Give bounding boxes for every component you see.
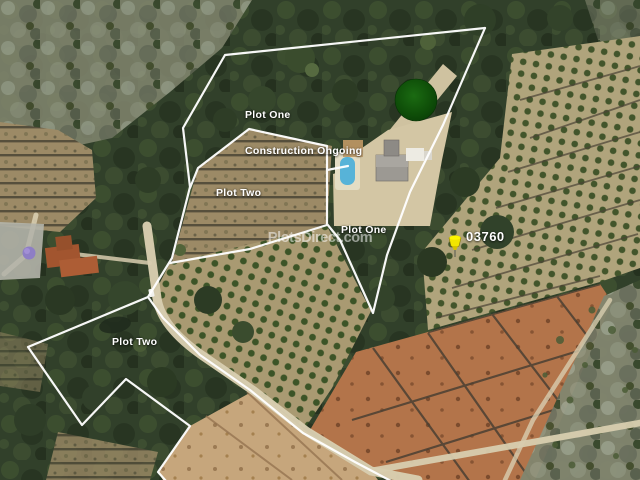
marker-code-label: 03760 <box>466 231 505 243</box>
courtyard <box>0 222 44 280</box>
aerial-plot-map: Plot One Construction Ongoing Plot Two P… <box>0 0 640 480</box>
label-line: Plot One <box>245 109 362 121</box>
label-plot-two-upper: Plot Two <box>216 187 261 199</box>
label-plot-one-construction: Plot One Construction Ongoing <box>245 85 362 169</box>
watermark: PlotsDirect.com <box>268 230 372 246</box>
construction-circle-overlay <box>395 79 437 121</box>
label-line: Construction Ongoing <box>245 145 362 157</box>
jacaranda-tree <box>23 247 36 260</box>
label-plot-two-lower: Plot Two <box>112 336 157 348</box>
